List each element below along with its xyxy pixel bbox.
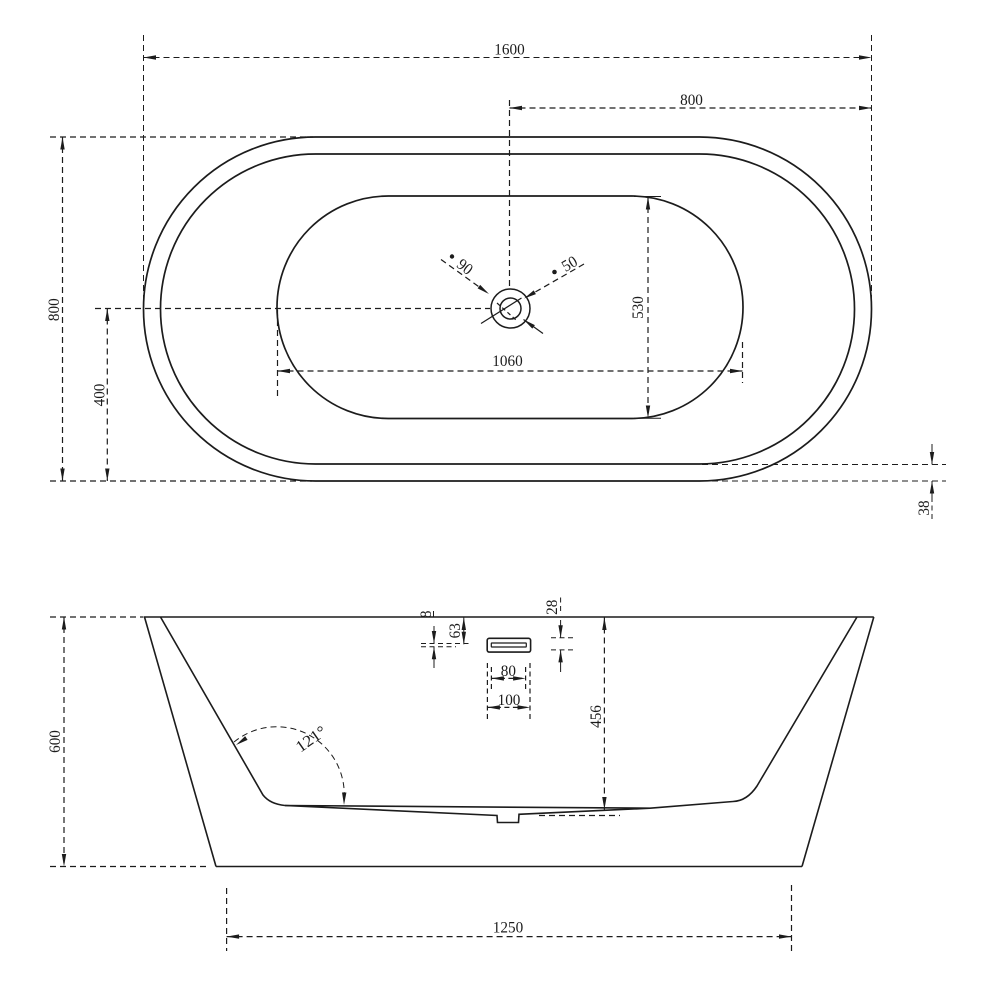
svg-text:28: 28	[543, 600, 561, 615]
svg-text:800: 800	[680, 91, 703, 109]
svg-text:1600: 1600	[494, 41, 524, 59]
svg-text:456: 456	[587, 705, 605, 728]
svg-text:8: 8	[417, 611, 435, 619]
svg-text:530: 530	[629, 296, 647, 319]
svg-text:1250: 1250	[493, 919, 523, 937]
svg-text:600: 600	[46, 730, 64, 753]
svg-text:63: 63	[446, 623, 464, 638]
svg-text:80: 80	[501, 662, 516, 680]
svg-text:800: 800	[45, 298, 63, 321]
svg-text:100: 100	[498, 691, 521, 709]
svg-text:400: 400	[91, 384, 109, 407]
svg-text:1060: 1060	[492, 352, 522, 370]
svg-text:38: 38	[915, 500, 933, 515]
